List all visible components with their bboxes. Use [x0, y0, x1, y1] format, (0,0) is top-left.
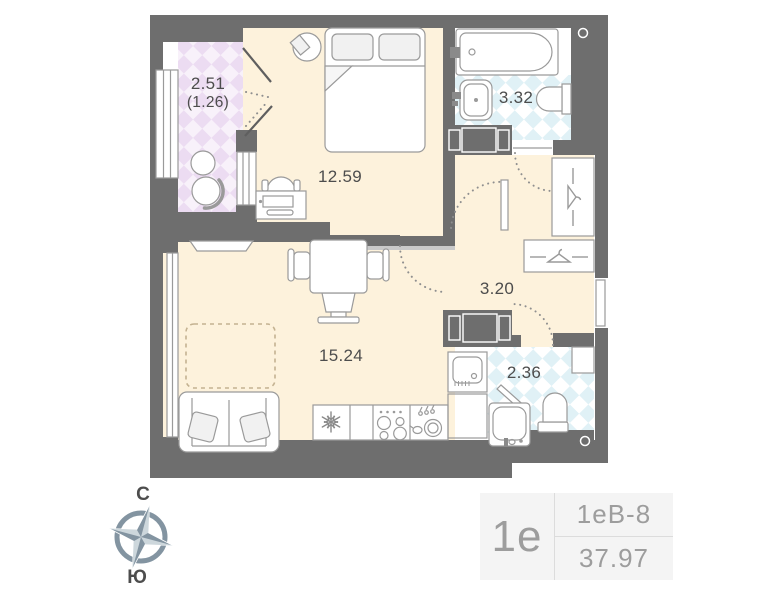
- tv-icon: [190, 241, 253, 251]
- room-label-bedroom: 12.59: [300, 167, 380, 186]
- floor-plan-page: 2.51 (1.26) 12.59 3.32 3.20 15.24 2.36 С…: [0, 0, 760, 600]
- chair-icon: [367, 252, 383, 279]
- room-label-bathroom: 3.32: [476, 88, 556, 107]
- balcony-inner-window: [237, 152, 256, 205]
- chair-icon: [322, 293, 355, 312]
- compass-south-label: Ю: [124, 567, 150, 589]
- unit-info-panel: 1е 1еВ-8 37.97: [480, 493, 673, 580]
- bathtub-icon: [450, 29, 558, 75]
- unit-total-area: 37.97: [555, 537, 673, 580]
- room-label-hallway: 3.20: [457, 279, 537, 298]
- closet-tall: [552, 158, 594, 236]
- entrance-door-leaf: [596, 280, 605, 326]
- sofa-pillow-icon: [239, 411, 271, 443]
- balcony-stool-icon: [191, 151, 215, 175]
- sofa-pillow-icon: [187, 411, 219, 443]
- balcony-chair-icon: [192, 177, 220, 205]
- chair-icon: [294, 252, 310, 279]
- sofa-icon: [179, 392, 279, 452]
- unit-code: 1еВ-8: [555, 493, 673, 537]
- pillow-icon: [379, 34, 420, 60]
- wc-duct-box: [572, 347, 594, 373]
- living-window: [167, 253, 178, 437]
- tub-faucet-icon: [450, 47, 460, 58]
- wc-sink-icon: [489, 403, 530, 446]
- compass-north-label: С: [130, 484, 156, 506]
- room-label-balcony: 2.51 (1.26): [168, 74, 248, 112]
- room-label-living-kitchen: 15.24: [301, 346, 381, 365]
- door-leaf-hall: [501, 180, 508, 230]
- compass-rose-icon: [101, 497, 182, 578]
- pillow-icon: [332, 34, 373, 60]
- desk-icon: [256, 177, 306, 219]
- bed-icon: [325, 28, 425, 152]
- unit-type: 1е: [480, 493, 555, 580]
- door-leaf-bedroom: [400, 236, 455, 246]
- closet-wide: [524, 240, 594, 272]
- room-label-wc: 2.36: [484, 363, 564, 382]
